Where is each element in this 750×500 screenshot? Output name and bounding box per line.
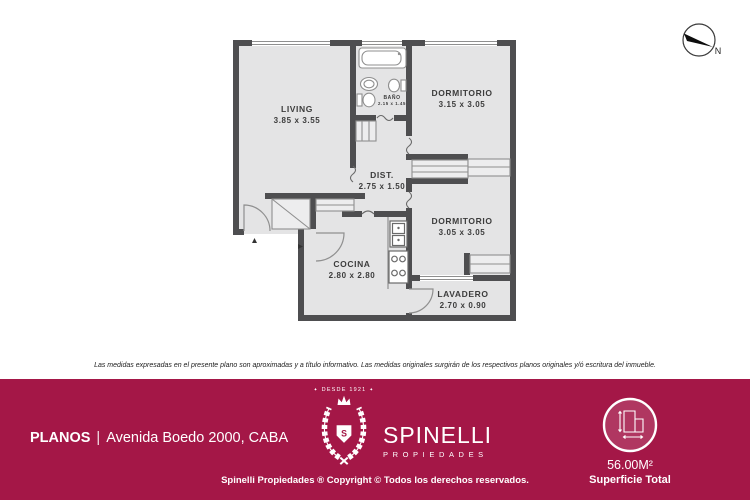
bidet [389,79,400,92]
room-dims-lavadero: 2.70 x 0.90 [440,301,487,310]
brand-name: SPINELLI [383,424,492,447]
room-dims-dormitorio2: 3.05 x 3.05 [439,228,486,237]
address-text: Avenida Boedo 2000, CABA [106,430,288,446]
compass-north-label: N [715,46,722,56]
bidet-tank [401,80,406,91]
surface-plan-icon [601,396,659,454]
stove [389,251,408,283]
plano-sheet: LIVING 3.85 x 3.55 BAÑO 2.15 x 1.45 DORM… [0,0,750,500]
room-name-dist: DIST. [370,170,394,180]
room-dims-cocina: 2.80 x 2.80 [329,271,376,280]
room-dims-dormitorio1: 3.15 x 3.05 [439,100,486,109]
room-name-living: LIVING [281,104,313,114]
surface-value: 56.00M² [607,458,653,472]
plan-title: PLANOS|Avenida Boedo 2000, CABA [30,430,288,446]
title-separator: | [96,430,100,446]
compass-needle [684,34,713,48]
crown-icon [338,396,351,405]
kitchen-fixtures [388,217,408,289]
brand-monogram: S [341,428,347,438]
floor-plan: LIVING 3.85 x 3.55 BAÑO 2.15 x 1.45 DORM… [0,0,750,378]
room-dims-living: 3.85 x 3.55 [274,116,321,125]
room-name-dormitorio1: DORMITORIO [431,88,492,98]
disclaimer-text: Las medidas expresadas en el presente pl… [0,362,750,369]
surface-block: 56.00M² Superficie Total [578,396,682,486]
laurel-wreath-icon: S [311,393,377,465]
footer-band: PLANOS|Avenida Boedo 2000, CABA ✦ DESDE … [0,379,750,500]
surface-label: Superficie Total [589,474,671,486]
room-dims-bano: 2.15 x 1.45 [378,101,406,106]
brand-subtitle: PROPIEDADES [383,450,492,459]
room-name-bano: BAÑO [383,94,400,101]
room-name-dormitorio2: DORMITORIO [431,216,492,226]
room-dims-dist: 2.75 x 1.50 [359,182,406,191]
sink [361,78,378,91]
room-name-cocina: COCINA [333,259,370,269]
section-label: PLANOS [30,430,90,446]
toilet [363,93,375,107]
room-name-lavadero: LAVADERO [437,289,488,299]
compass-icon: N [683,24,721,56]
entry-arrows [252,238,303,249]
brand-logo: ✦ DESDE 1921 ✦ S SPINELLI PROPIEDADE [310,387,492,465]
toilet-tank [357,94,362,106]
